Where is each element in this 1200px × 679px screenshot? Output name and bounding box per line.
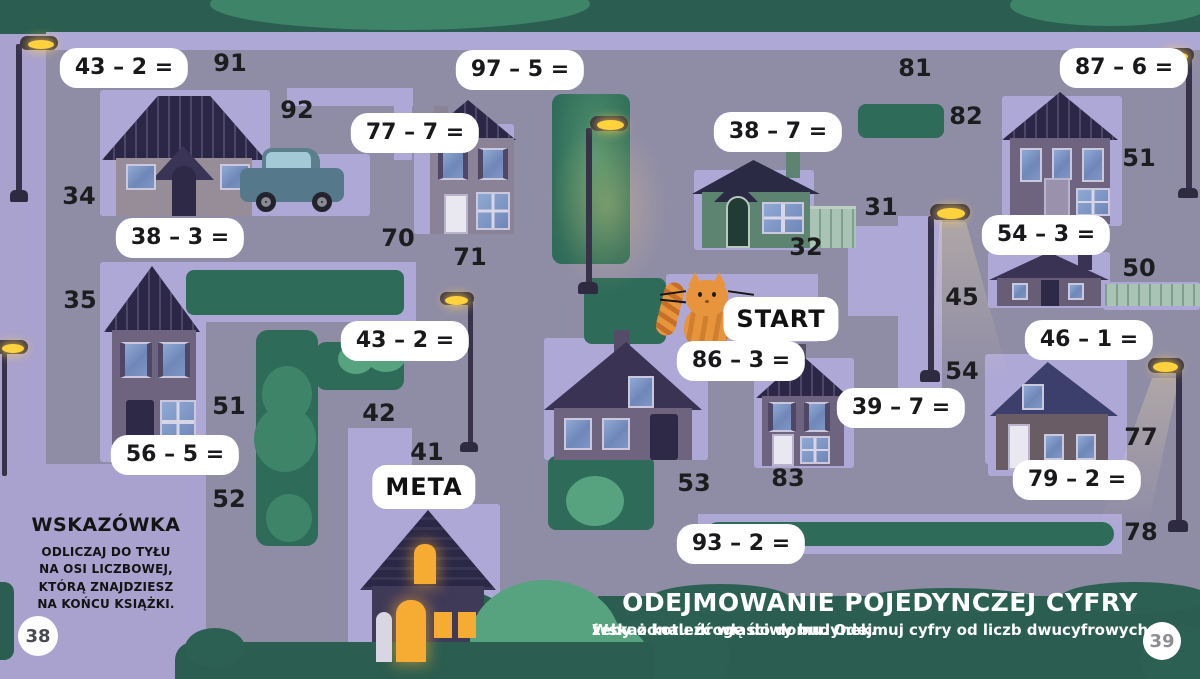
- road-number: 70: [381, 224, 414, 252]
- window: [1012, 283, 1028, 300]
- road-number: 71: [453, 243, 486, 271]
- page-number-left-value: 38: [25, 626, 50, 647]
- lawn-patch: [858, 104, 944, 138]
- window: [762, 202, 804, 234]
- road-number: 51: [212, 392, 245, 420]
- road-number: 82: [949, 102, 982, 130]
- window: [476, 192, 510, 230]
- window: [1076, 434, 1096, 460]
- road-number: 41: [410, 438, 443, 466]
- edge-bush: [0, 582, 14, 660]
- window: [1068, 283, 1084, 300]
- road-number: 34: [62, 182, 95, 210]
- car-wheel: [312, 192, 332, 212]
- road-number: 78: [1124, 518, 1157, 546]
- lamp-bulb: [937, 208, 965, 219]
- lesson-block: ODEJMOWANIE POJEDYNCZEJ CYFRY Wskaż kotu…: [592, 588, 1168, 617]
- window: [1020, 148, 1042, 182]
- road-number: 50: [1122, 254, 1155, 282]
- car-wheel: [256, 192, 276, 212]
- window: [800, 436, 830, 464]
- math-problem-badge[interactable]: 79 – 2 =: [1013, 460, 1141, 500]
- lamp-bulb: [597, 120, 624, 130]
- hint-line: NA OSI LICZBOWEJ,: [30, 561, 182, 578]
- door: [1041, 280, 1059, 306]
- lamp-base: [578, 282, 598, 294]
- lamp-base: [920, 370, 940, 382]
- hint-line: NA KOŃCU KSIĄŻKI.: [30, 596, 182, 613]
- hint-line: KTÓRĄ ZNAJDZIESZ: [30, 579, 182, 596]
- window: [564, 418, 592, 450]
- road-number: 52: [212, 485, 245, 513]
- lit-window: [458, 612, 476, 638]
- math-problem-badge[interactable]: 87 – 6 =: [1060, 48, 1188, 88]
- door: [726, 196, 750, 248]
- lamp-post: [468, 302, 473, 444]
- cat-head: [686, 280, 728, 316]
- boardwalk: [1105, 284, 1200, 306]
- window: [1076, 188, 1110, 216]
- road-number: 42: [362, 399, 395, 427]
- math-problem-badge[interactable]: 86 – 3 =: [677, 341, 805, 381]
- lamp-bulb: [445, 296, 468, 305]
- window: [768, 402, 796, 432]
- math-problem-badge[interactable]: 93 – 2 =: [677, 524, 805, 564]
- window: [1044, 434, 1064, 460]
- tree: [254, 406, 316, 472]
- window: [1022, 384, 1044, 410]
- window: [478, 148, 508, 180]
- math-problem-badge[interactable]: 97 – 5 =: [456, 50, 584, 90]
- lamp-post: [586, 128, 592, 286]
- window: [602, 418, 630, 450]
- math-problem-badge[interactable]: 54 – 3 =: [982, 215, 1110, 255]
- window: [804, 402, 830, 432]
- road-number: 35: [63, 286, 96, 314]
- hint-lines: ODLICZAJ DO TYŁUNA OSI LICZBOWEJ,KTÓRĄ Z…: [30, 544, 182, 614]
- door: [650, 414, 678, 460]
- cat-eye: [712, 292, 716, 297]
- window: [1082, 148, 1104, 182]
- cat-nose: [705, 300, 709, 303]
- lamp-bulb: [2, 344, 24, 353]
- lamp-post: [2, 352, 7, 476]
- page-number-left: 38: [18, 616, 58, 656]
- door: [772, 434, 794, 466]
- lamp-base: [460, 442, 478, 452]
- window: [1052, 148, 1072, 180]
- hint-block: WSKAZÓWKA ODLICZAJ DO TYŁUNA OSI LICZBOW…: [30, 514, 182, 614]
- road-number: 53: [677, 469, 710, 497]
- hint-title: WSKAZÓWKA: [30, 514, 182, 536]
- lit-window: [414, 544, 436, 584]
- tree: [266, 494, 312, 542]
- lesson-title: ODEJMOWANIE POJEDYNCZEJ CYFRY: [592, 588, 1168, 617]
- bush: [566, 476, 624, 526]
- road-number: 45: [945, 283, 978, 311]
- road-number: 51: [1122, 144, 1155, 172]
- window: [158, 342, 190, 378]
- window: [120, 342, 152, 378]
- lamp-base: [1178, 188, 1198, 198]
- math-problem-badge[interactable]: 77 – 7 =: [351, 113, 479, 153]
- page-number-right: 39: [1143, 622, 1181, 660]
- lamp-post: [928, 216, 934, 374]
- lit-window: [434, 612, 452, 638]
- cat-eye: [698, 292, 702, 297]
- lamp-glow: [548, 118, 668, 294]
- road-number: 92: [280, 96, 313, 124]
- math-problem-badge[interactable]: 43 – 2 =: [341, 321, 469, 361]
- meta-label-badge: META: [372, 465, 475, 509]
- door: [376, 612, 392, 662]
- lamp-post: [1186, 58, 1192, 190]
- window: [628, 376, 654, 408]
- math-problem-badge[interactable]: 39 – 7 =: [837, 388, 965, 428]
- door: [444, 194, 468, 234]
- road-number: 91: [213, 49, 246, 77]
- window: [126, 164, 156, 190]
- lamp-post: [1176, 370, 1182, 522]
- start-label-badge: START: [723, 297, 838, 341]
- road-number: 81: [898, 54, 931, 82]
- road-number: 31: [864, 193, 897, 221]
- lit-door: [396, 600, 426, 662]
- page-number-right-value: 39: [1149, 631, 1174, 652]
- math-problem-badge[interactable]: 56 – 5 =: [111, 435, 239, 475]
- math-problem-badge[interactable]: 38 – 3 =: [116, 218, 244, 258]
- math-problem-badge[interactable]: 46 – 1 =: [1025, 320, 1153, 360]
- door: [172, 166, 196, 216]
- lamp-bulb: [28, 40, 54, 49]
- workbook-spread: 43 – 2 =97 – 5 =87 – 6 =77 – 7 =38 – 7 =…: [0, 0, 1200, 679]
- math-problem-badge[interactable]: 43 – 2 =: [60, 48, 188, 88]
- math-problem-badge[interactable]: 38 – 7 =: [714, 112, 842, 152]
- hedge: [186, 270, 404, 315]
- lamp-base: [10, 190, 28, 202]
- chimney: [786, 148, 800, 178]
- lamp-base: [1168, 520, 1188, 532]
- road-number: 54: [945, 357, 978, 385]
- maze-wall: [46, 32, 1200, 50]
- bush: [185, 628, 245, 668]
- lesson-instruction-line: żeby odnaleźć właściwy budynek.: [592, 621, 876, 639]
- hint-line: ODLICZAJ DO TYŁU: [30, 544, 182, 561]
- road-number: 32: [789, 233, 822, 261]
- lamp-post: [16, 44, 22, 192]
- lamp-bulb: [1153, 362, 1178, 372]
- road-number: 77: [1124, 423, 1157, 451]
- road-number: 83: [771, 464, 804, 492]
